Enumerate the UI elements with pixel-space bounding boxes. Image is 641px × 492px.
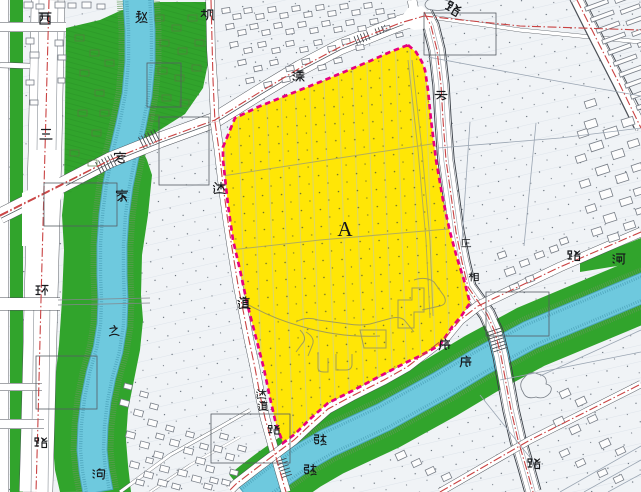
svg-text:A: A [337, 217, 353, 241]
